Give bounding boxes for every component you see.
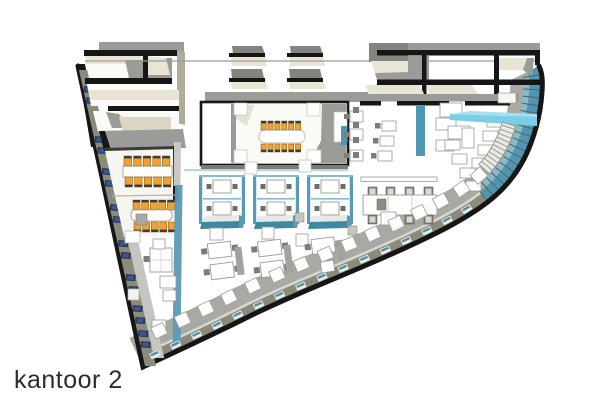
svg-text:kantoor 2: kantoor 2 (14, 366, 123, 394)
